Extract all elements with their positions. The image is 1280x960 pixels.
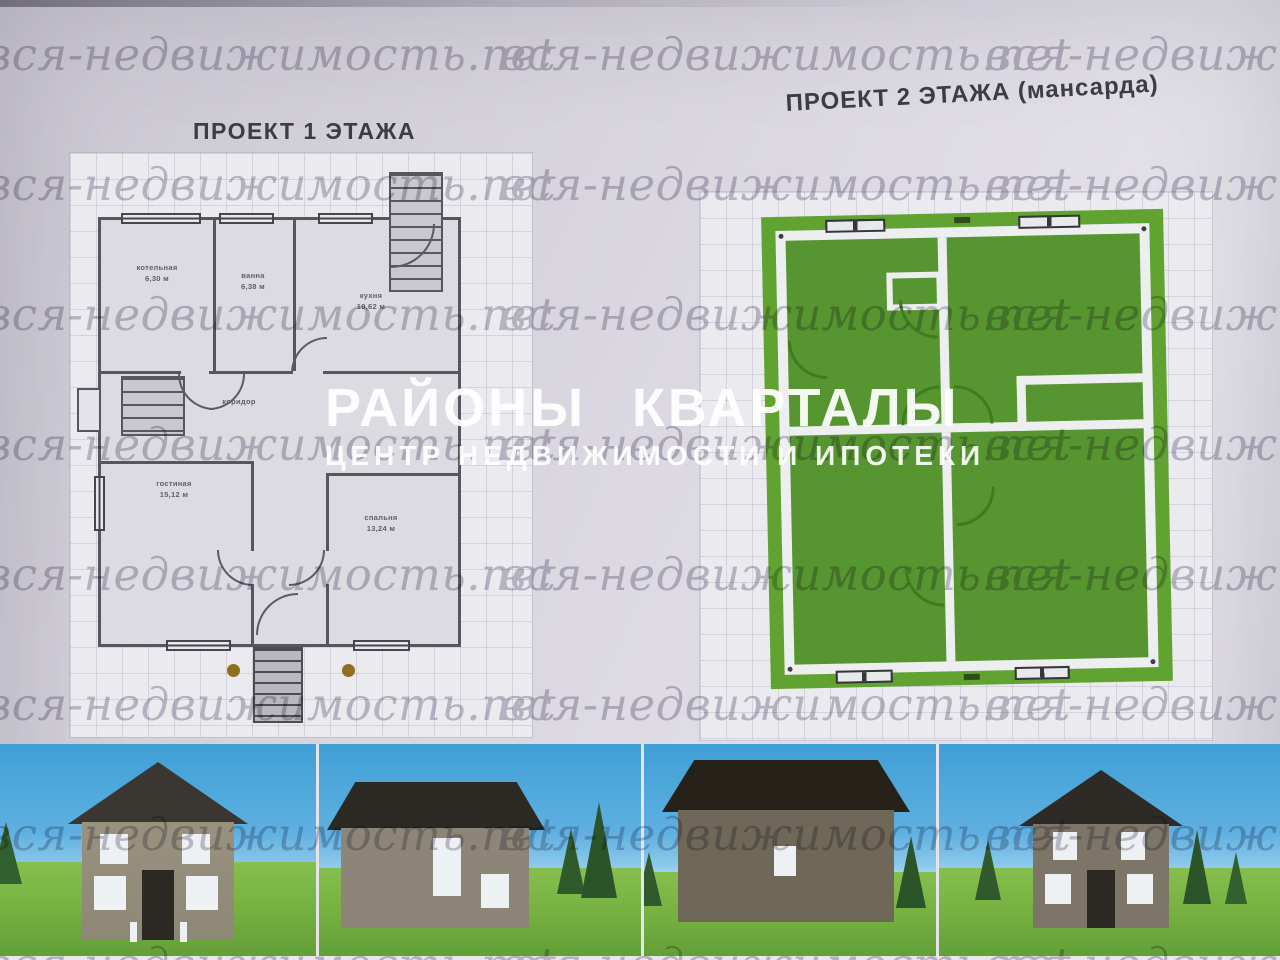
paper-below-strip — [0, 956, 1280, 960]
roof-hip — [327, 782, 545, 830]
room-label-gostinaya: гостиная 15,12 м — [126, 478, 222, 500]
house-window — [433, 838, 461, 896]
room-name: ванна — [241, 271, 264, 280]
door-arc — [904, 568, 944, 608]
fir-tree — [1183, 830, 1211, 904]
fir-tree — [581, 802, 617, 898]
window — [219, 213, 274, 224]
agency-logo: РАЙОНЫ КВАРТАЛЫ ЦЕНТР НЕДВИЖИМОСТИ И ИПО… — [325, 380, 985, 472]
room-label-spalnya: спальня 13,24 м — [339, 512, 423, 534]
house-render-side-1 — [319, 744, 641, 956]
wall — [251, 461, 254, 551]
watermark-text: вся-недвижимость.net — [0, 28, 556, 81]
agency-logo-subtitle: ЦЕНТР НЕДВИЖИМОСТИ И ИПОТЕКИ — [325, 440, 985, 472]
house-window — [1127, 874, 1153, 904]
house-render-front-1 — [0, 744, 316, 956]
roof-hip — [662, 760, 910, 812]
door-arc — [956, 486, 996, 526]
door-arc — [291, 337, 327, 373]
room-label-kotelnaya: котельная 6,30 м — [109, 262, 205, 284]
house-wall — [341, 828, 529, 928]
plan2-title: ПРОЕКТ 2 ЭТАЖА (мансарда) — [785, 70, 1159, 118]
wall — [326, 584, 329, 644]
entry-door-arc — [256, 593, 298, 635]
house-wall — [678, 810, 894, 922]
corner-screw — [1150, 659, 1155, 664]
room-name: гостиная — [156, 479, 191, 488]
room-label-kuhnya: кухня 19,62 м — [323, 290, 419, 312]
house-render-front-2 — [939, 744, 1280, 956]
plan1-title: ПРОЕКТ 1 ЭТАЖА — [193, 118, 416, 145]
house-window — [100, 834, 128, 864]
house-door — [1087, 870, 1115, 928]
left-bay — [77, 388, 101, 432]
corner-screw — [778, 234, 783, 239]
roof-gable — [1019, 770, 1183, 826]
room-name: спальня — [364, 513, 397, 522]
window — [121, 213, 201, 224]
wall — [213, 220, 216, 371]
agency-logo-title: РАЙОНЫ КВАРТАЛЫ — [325, 380, 985, 436]
room-area: 6,30 м — [145, 274, 169, 283]
wall — [1016, 376, 1026, 431]
photographed-flyer: ПРОЕКТ 1 ЭТАЖА ПРОЕКТ 2 ЭТАЖА (мансарда) — [0, 0, 1280, 960]
house-wall — [1033, 824, 1169, 928]
wall — [101, 371, 181, 374]
house-window — [1121, 832, 1145, 860]
corner-screw — [1141, 226, 1146, 231]
house-window — [1053, 832, 1077, 860]
door-arc — [788, 340, 828, 380]
house-window — [774, 846, 796, 876]
fir-tree — [896, 836, 926, 908]
porch-post — [180, 922, 187, 942]
roof-gable — [68, 762, 248, 824]
dimension-mark — [954, 217, 970, 223]
wall — [251, 584, 254, 644]
house-window — [481, 874, 509, 908]
room-label-vanna: ванна 6,38 м — [217, 270, 289, 292]
house-render-side-2 — [644, 744, 936, 956]
stove-block — [121, 376, 185, 436]
room-label-koridor: коридор — [201, 396, 277, 407]
corner-screw — [788, 667, 793, 672]
house-window — [1045, 874, 1071, 904]
fir-tree — [1225, 852, 1247, 904]
porch-post — [227, 664, 240, 677]
house-window — [94, 876, 126, 910]
window — [1015, 666, 1070, 680]
window — [94, 476, 105, 531]
window — [318, 213, 373, 224]
wall — [326, 473, 458, 476]
wall — [1016, 373, 1142, 385]
window — [166, 640, 231, 651]
room-area: 19,62 м — [357, 302, 386, 311]
door-arc — [899, 300, 939, 340]
house-window — [186, 876, 218, 910]
room-area: 15,12 м — [160, 490, 189, 499]
porch-post — [130, 922, 137, 942]
photo-top-edge — [0, 0, 1280, 7]
wall — [293, 220, 296, 371]
window — [1018, 215, 1080, 229]
door-arc — [217, 550, 253, 586]
entry-steps — [253, 647, 303, 723]
watermark-text: вся-недвижимость.net — [500, 28, 1071, 81]
wall — [101, 461, 251, 464]
fir-tree — [0, 822, 22, 884]
room-area: 6,38 м — [241, 282, 265, 291]
room-name: коридор — [222, 397, 255, 406]
house-door — [142, 870, 174, 940]
wall — [323, 371, 458, 374]
fir-tree — [975, 840, 1001, 900]
house-window — [182, 834, 210, 864]
window — [353, 640, 410, 651]
door-arc — [289, 550, 325, 586]
house-render-strip — [0, 744, 1280, 956]
porch-post — [342, 664, 355, 677]
room-name: кухня — [360, 291, 383, 300]
room-area: 13,24 м — [367, 524, 396, 533]
window — [825, 219, 885, 233]
house-wall — [82, 822, 234, 940]
wall — [326, 473, 329, 551]
fir-tree — [644, 852, 662, 906]
window — [836, 670, 893, 684]
dimension-mark — [964, 674, 980, 680]
room-name: котельная — [136, 263, 177, 272]
